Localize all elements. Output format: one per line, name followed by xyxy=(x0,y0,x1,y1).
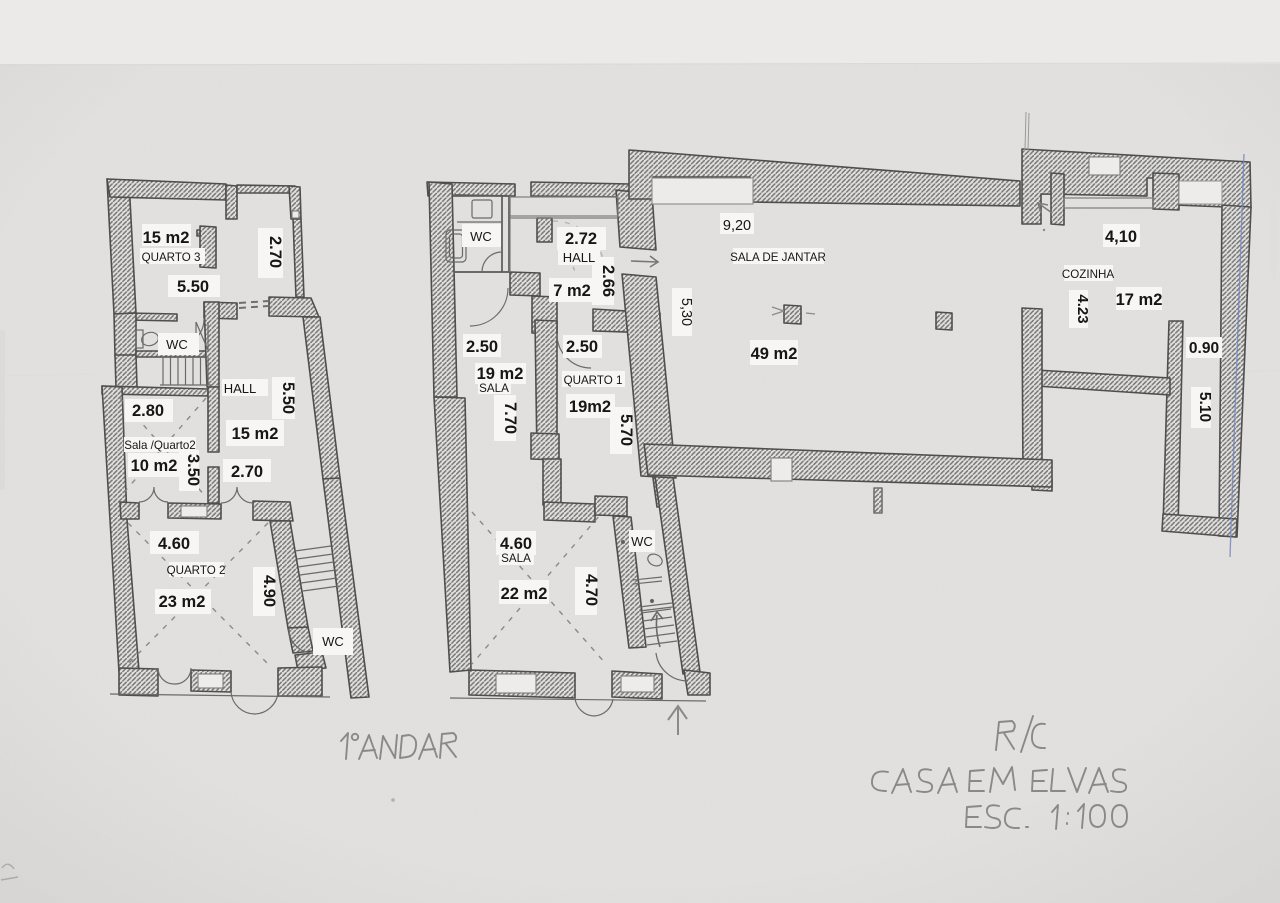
svg-text:2.50: 2.50 xyxy=(466,338,498,356)
svg-text:WC: WC xyxy=(166,337,188,352)
svg-text:3.50: 3.50 xyxy=(184,454,202,486)
svg-text:23 m2: 23 m2 xyxy=(159,593,206,611)
svg-text:4.23: 4.23 xyxy=(1074,294,1091,323)
svg-text:2.72: 2.72 xyxy=(565,230,597,248)
svg-text:2.70: 2.70 xyxy=(231,463,263,481)
svg-text:2.66: 2.66 xyxy=(599,265,617,297)
svg-text:HALL: HALL xyxy=(224,381,257,396)
svg-text:4.70: 4.70 xyxy=(582,574,600,606)
svg-text:Sala /Quarto2: Sala /Quarto2 xyxy=(124,439,196,452)
svg-text:4.60: 4.60 xyxy=(158,535,190,553)
svg-text:SALA: SALA xyxy=(501,552,531,565)
svg-text:QUARTO 1: QUARTO 1 xyxy=(564,374,623,387)
svg-text:SALA: SALA xyxy=(479,382,509,395)
svg-text:5,30: 5,30 xyxy=(678,298,694,326)
svg-text:5.10: 5.10 xyxy=(1196,392,1213,422)
svg-text:0.90: 0.90 xyxy=(1189,340,1219,357)
svg-text:5.70: 5.70 xyxy=(617,414,635,446)
svg-text:2.50: 2.50 xyxy=(566,338,598,356)
svg-text:WC: WC xyxy=(322,634,344,649)
svg-text:19m2: 19m2 xyxy=(569,398,611,416)
svg-text:9,20: 9,20 xyxy=(723,218,751,234)
svg-text:15 m2: 15 m2 xyxy=(143,229,190,247)
svg-text:WC: WC xyxy=(631,534,653,549)
svg-text:19 m2: 19 m2 xyxy=(477,365,524,383)
svg-text:7.70: 7.70 xyxy=(501,402,519,434)
svg-text:5.50: 5.50 xyxy=(279,382,297,414)
svg-text:WC: WC xyxy=(470,229,492,244)
svg-text:2.70: 2.70 xyxy=(266,236,284,268)
svg-text:QUARTO 3: QUARTO 3 xyxy=(142,251,201,264)
svg-text:22 m2: 22 m2 xyxy=(501,585,548,603)
svg-text:2.80: 2.80 xyxy=(132,402,164,420)
svg-text:15 m2: 15 m2 xyxy=(232,425,279,443)
svg-text:4,10: 4,10 xyxy=(1105,228,1137,246)
svg-text:SALA DE JANTAR: SALA DE JANTAR xyxy=(730,251,826,264)
svg-text:17 m2: 17 m2 xyxy=(1116,291,1163,309)
svg-text:5.50: 5.50 xyxy=(177,278,209,296)
svg-text:10 m2: 10 m2 xyxy=(131,457,178,475)
svg-text:7 m2: 7 m2 xyxy=(553,282,591,300)
svg-text:QUARTO 2: QUARTO 2 xyxy=(167,564,226,577)
svg-text:HALL: HALL xyxy=(563,250,596,265)
svg-text:4.90: 4.90 xyxy=(260,575,278,607)
svg-text:4.60: 4.60 xyxy=(500,535,532,553)
svg-text:COZINHA: COZINHA xyxy=(1062,268,1114,281)
svg-text:49 m2: 49 m2 xyxy=(751,345,798,363)
